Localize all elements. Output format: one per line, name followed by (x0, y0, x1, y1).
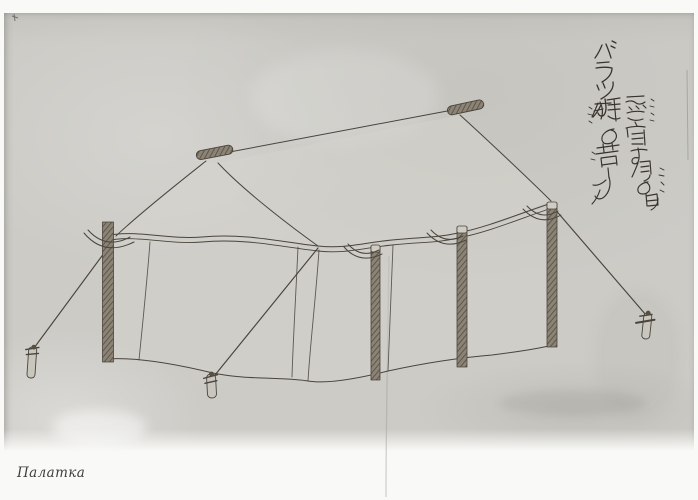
calligraphy-annotation (588, 41, 664, 210)
post-left (103, 222, 114, 362)
post-right-corner-cap (547, 202, 557, 209)
stake-right (634, 310, 655, 340)
ridge-baton-right (447, 99, 485, 115)
stake-front (203, 371, 218, 398)
furigana-marks-left (588, 107, 595, 160)
right-guy-rope (553, 207, 646, 315)
post-right-inner-cap (457, 226, 467, 233)
figure-caption: Палатка (17, 465, 85, 481)
post-right-corner (547, 203, 557, 347)
ridge-baton-left (196, 144, 234, 160)
left-guy-rope (34, 241, 113, 348)
stake-left (24, 344, 39, 378)
tent-drawing (24, 99, 656, 398)
post-center (371, 246, 380, 380)
post-center-cap (371, 245, 380, 252)
tent-illustration (0, 0, 698, 500)
furigana-marks-right (650, 99, 664, 192)
post-right-inner (457, 227, 467, 367)
cursive-column-1 (626, 96, 664, 210)
